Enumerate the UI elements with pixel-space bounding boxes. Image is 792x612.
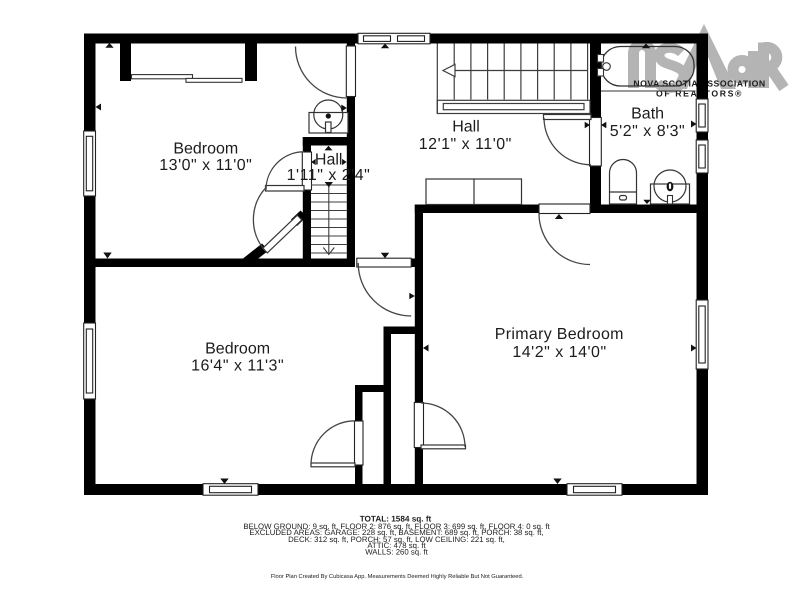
svg-text:WALLS: 260 sq. ft: WALLS: 260 sq. ft xyxy=(365,548,428,557)
svg-text:Bedroom: Bedroom xyxy=(205,341,270,358)
svg-text:Hall: Hall xyxy=(452,119,480,136)
svg-text:5'2" x 8'3": 5'2" x 8'3" xyxy=(610,123,685,140)
svg-text:16'4" x 11'3": 16'4" x 11'3" xyxy=(191,357,284,374)
svg-text:12'1" x 11'0": 12'1" x 11'0" xyxy=(419,136,512,153)
svg-text:14'2" x 14'0": 14'2" x 14'0" xyxy=(512,344,606,361)
svg-text:Floor Plan Created By Cubicasa: Floor Plan Created By Cubicasa App. Meas… xyxy=(271,573,524,580)
svg-text:Primary Bedroom: Primary Bedroom xyxy=(495,326,624,343)
svg-text:Bedroom: Bedroom xyxy=(173,141,238,158)
svg-text:13'0" x 11'0": 13'0" x 11'0" xyxy=(159,157,252,174)
svg-text:Bath: Bath xyxy=(631,106,664,123)
svg-text:1'11" x 2'4": 1'11" x 2'4" xyxy=(287,167,371,184)
